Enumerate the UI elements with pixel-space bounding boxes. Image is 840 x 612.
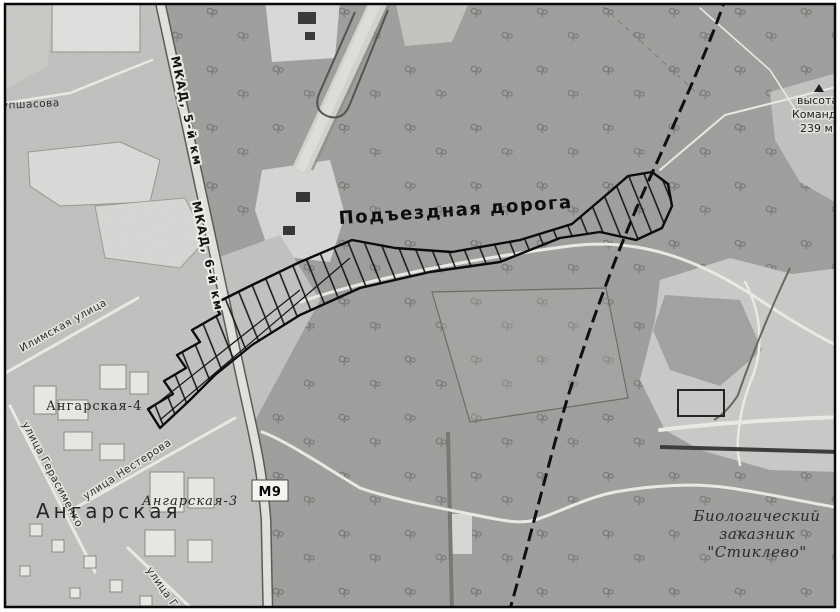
reserve-label-line3: "Стиклево" <box>707 543 806 561</box>
m9-badge-text: М9 <box>259 485 282 500</box>
map-canvas: Подъездная дорога МКАД, 5-й км МКАД, 6-й… <box>0 0 840 612</box>
height-label-line2: Командн <box>792 108 840 121</box>
scanned-topographic-map: Подъездная дорога МКАД, 5-й км МКАД, 6-й… <box>0 0 840 612</box>
reserve-label-line1: Биологический <box>693 507 821 525</box>
m9-road-badge: М9 <box>252 480 288 501</box>
height-label-line1: высота <box>797 94 838 107</box>
height-label-line3: 239 м <box>800 122 833 135</box>
reserve-label-line2: заказник <box>719 525 795 543</box>
district-angarskaya3-label: Ангарская-3 <box>141 494 238 509</box>
district-angarskaya4-label: Ангарская-4 <box>46 399 142 414</box>
